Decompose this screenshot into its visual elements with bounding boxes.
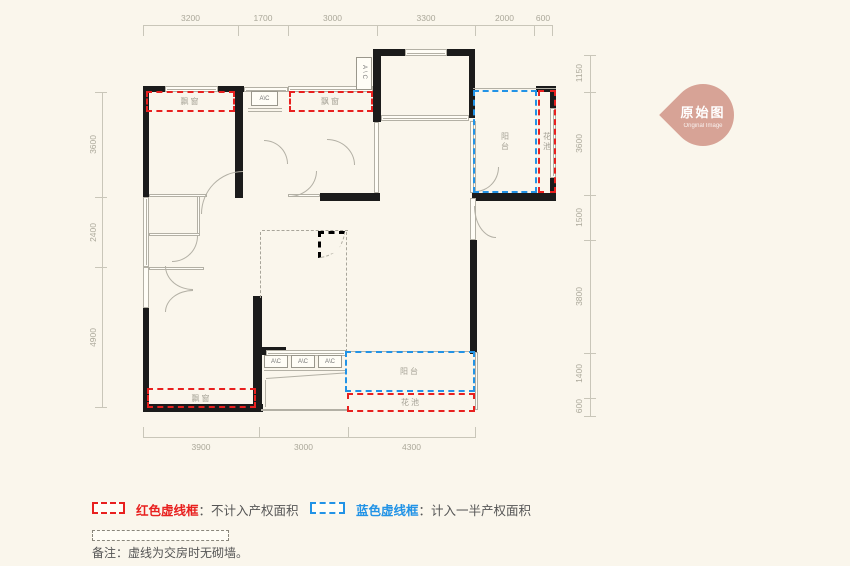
vent-line: [248, 111, 282, 112]
legend-red-label: 红色虚线框：不计入产权面积: [136, 500, 299, 519]
legend-blue-label: 蓝色虚线框：计入一半产权面积: [356, 500, 531, 519]
dim-label-left: 4900: [86, 267, 100, 408]
bay-window-box: 飘窗: [289, 91, 373, 112]
dim-label-bottom: 4300: [348, 440, 475, 453]
flower-bed-box: 花池: [538, 90, 556, 193]
ac-unit: A\C: [264, 355, 288, 368]
door-arc: [165, 290, 193, 312]
badge-subtitle: Original Image: [683, 123, 722, 129]
balcony-box: 阳台: [473, 90, 537, 193]
dim-label-bottom: 3000: [259, 440, 348, 453]
ruler-tick: [552, 25, 553, 36]
window: [143, 197, 149, 267]
ruler-tick: [288, 25, 289, 36]
wall-segment: [320, 193, 380, 201]
door-arc: [172, 236, 198, 262]
wall-segment: [373, 56, 381, 122]
interior-wall: [143, 267, 149, 308]
ruler-tick: [534, 25, 535, 36]
interior-wall: [149, 194, 207, 197]
window: [381, 115, 469, 121]
flower-bed-box: 花池: [347, 393, 475, 412]
door-arc: [318, 231, 345, 258]
wall-segment: [470, 240, 477, 354]
legend-note: 备注：虚线为交房时无砌墙。: [92, 544, 248, 561]
door-arc: [201, 171, 243, 214]
dim-label-top: 3300: [377, 11, 475, 24]
legend-red-swatch: [92, 502, 125, 514]
ruler-tick: [475, 25, 476, 36]
floor-plan-page: 3200 1700 3000 3300 2000 600 3600 2400 4…: [0, 0, 850, 566]
dim-label-right: 1400: [572, 351, 586, 396]
ruler-tick: [238, 25, 239, 36]
bay-window-box: 飘窗: [146, 91, 235, 112]
dim-label-left: 2400: [86, 197, 100, 267]
dim-label-top: 600: [531, 11, 555, 24]
dim-label-top: 3000: [288, 11, 377, 24]
dim-label-bottom: 3900: [143, 440, 259, 453]
dim-label-right: 3600: [572, 92, 586, 195]
badge-title: 原始图: [680, 102, 725, 121]
dim-label-top: 2000: [475, 11, 534, 24]
dashed-wall: [260, 232, 263, 298]
ruler-tick: [143, 427, 144, 438]
dim-label-top: 1700: [238, 11, 288, 24]
bay-window-box: 飘窗: [147, 388, 256, 408]
door-arc: [327, 139, 355, 165]
plan-edge-line: [261, 409, 347, 411]
ac-unit: A\C: [356, 57, 372, 90]
ruler-tick: [143, 25, 144, 36]
door-arc: [474, 206, 496, 238]
ac-unit: A\C: [251, 91, 278, 106]
balcony-box: 阳台: [345, 351, 475, 392]
ac-unit: A\C: [291, 355, 315, 368]
dashed-wall: [346, 232, 349, 352]
interior-wall: [197, 196, 200, 234]
left-ruler-line: [102, 92, 103, 408]
interior-wall: [374, 122, 379, 193]
original-image-badge: 原始图 Original Image: [659, 71, 747, 159]
dim-label-right: 1500: [572, 195, 586, 240]
right-ruler-line: [590, 55, 591, 417]
wall-segment: [373, 49, 405, 56]
dim-label-top: 3200: [143, 11, 238, 24]
dim-label-right: 3800: [572, 240, 586, 353]
wall-segment: [472, 193, 556, 201]
dim-label-right: 1150: [572, 55, 586, 92]
dim-label-left: 3600: [86, 92, 100, 197]
top-ruler-line: [143, 25, 553, 26]
vent-line: [248, 108, 282, 109]
ruler-tick: [377, 25, 378, 36]
ruler-tick: [348, 427, 349, 438]
ruler-tick: [259, 427, 260, 438]
legend-dashed-wall-swatch: [92, 530, 229, 541]
legend-blue-swatch: [310, 502, 345, 514]
balcony-edge-line: [473, 88, 556, 89]
dim-label-right: 600: [572, 394, 586, 418]
door-arc: [264, 140, 288, 164]
counter-line: [265, 380, 266, 407]
counter-line: [266, 372, 346, 379]
ac-unit: A\C: [318, 355, 342, 368]
ruler-tick: [475, 427, 476, 438]
bottom-ruler-line: [143, 437, 476, 438]
window: [405, 49, 447, 56]
counter-line: [264, 370, 347, 371]
door-arc: [165, 266, 193, 290]
interior-wall: [475, 352, 478, 410]
